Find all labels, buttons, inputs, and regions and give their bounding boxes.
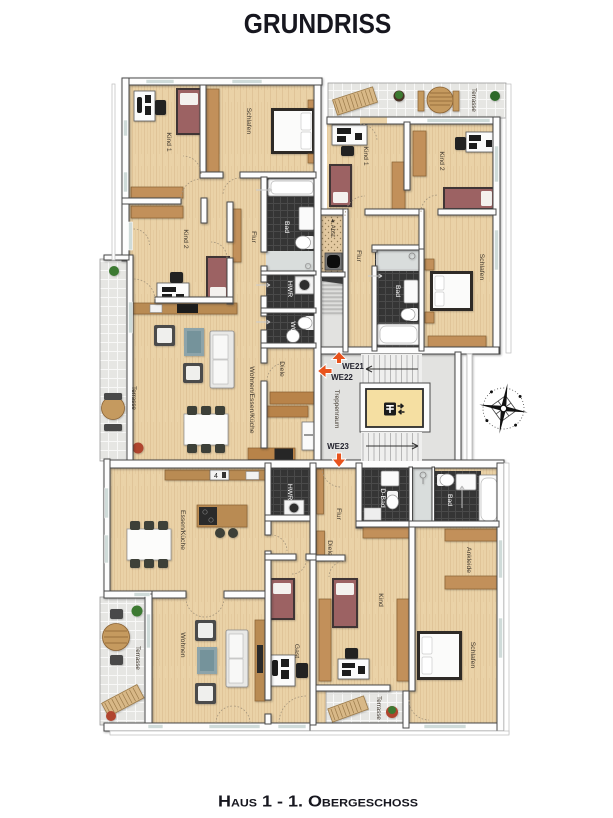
svg-text:Ankleide: Ankleide — [465, 547, 472, 573]
svg-text:GRUNDRISS: GRUNDRISS — [244, 8, 392, 39]
svg-text:Schlafen: Schlafen — [469, 642, 476, 669]
svg-text:Diele: Diele — [326, 540, 333, 556]
svg-text:HWR: HWR — [286, 281, 293, 297]
svg-text:Treppenraum: Treppenraum — [333, 390, 340, 429]
svg-text:WE22: WE22 — [331, 373, 353, 382]
svg-text:Terrasse: Terrasse — [134, 646, 141, 670]
svg-text:Kind 1: Kind 1 — [362, 146, 369, 165]
svg-text:Diele: Diele — [278, 361, 285, 377]
svg-text:Wohnen/Essen/Küche: Wohnen/Essen/Küche — [248, 366, 255, 433]
svg-text:4: 4 — [214, 473, 218, 480]
svg-text:Bad: Bad — [446, 494, 453, 506]
svg-text:Flur: Flur — [250, 231, 257, 243]
svg-text:Essen/Küche: Essen/Küche — [179, 510, 186, 550]
svg-text:D-Bad: D-Bad — [379, 488, 386, 507]
svg-text:Kind 2: Kind 2 — [182, 229, 189, 248]
svg-text:Kind: Kind — [377, 593, 384, 607]
svg-text:◄ Abst.: ◄ Abst. — [329, 218, 335, 239]
svg-text:Terrasse: Terrasse — [130, 386, 137, 410]
svg-text:Schlafen: Schlafen — [478, 254, 485, 281]
svg-text:Bad: Bad — [394, 285, 401, 297]
svg-text:Flur: Flur — [355, 250, 362, 262]
svg-text:Kind 1: Kind 1 — [165, 132, 172, 151]
svg-text:Schlafen: Schlafen — [245, 108, 252, 135]
svg-text:Terrasse: Terrasse — [470, 88, 477, 112]
svg-text:Flur: Flur — [335, 508, 342, 520]
svg-text:Gast: Gast — [293, 644, 300, 658]
svg-text:Wohnen: Wohnen — [179, 632, 186, 657]
svg-text:HWR: HWR — [286, 484, 293, 500]
svg-text:WE21: WE21 — [342, 362, 364, 371]
svg-text:Bad: Bad — [283, 221, 290, 233]
svg-text:WE23: WE23 — [327, 442, 349, 451]
svg-text:Kind 2: Kind 2 — [438, 151, 445, 170]
svg-text:Terrasse: Terrasse — [375, 696, 382, 720]
svg-text:Haus 1 - 1. Obergeschoss: Haus 1 - 1. Obergeschoss — [218, 794, 418, 811]
svg-text:WC: WC — [289, 321, 296, 332]
